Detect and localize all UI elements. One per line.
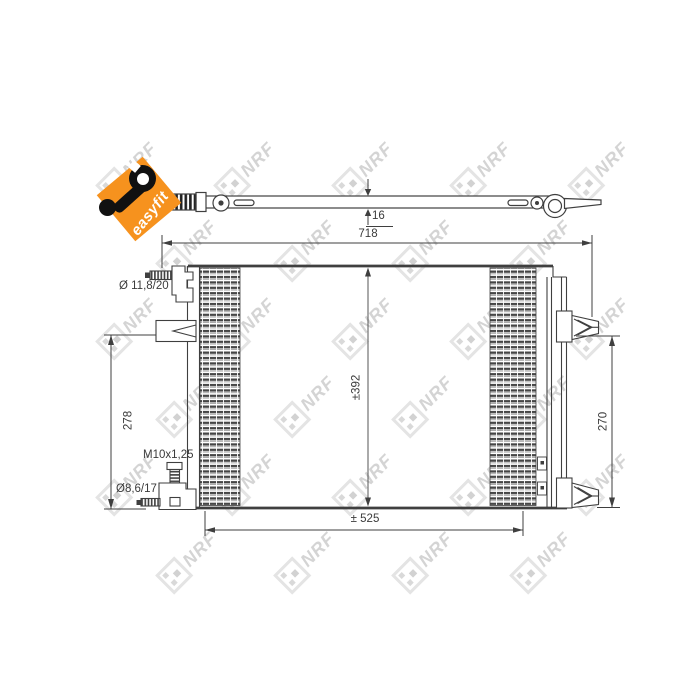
dim-label-core-height: ±392 xyxy=(351,360,364,416)
front-view xyxy=(186,266,567,508)
technical-drawing-page: NRFNRFNRFNRFNRFNRFNRFNRFNRFNRFNRFNRFNRFN… xyxy=(0,0,700,700)
centerline-392 xyxy=(365,268,371,507)
dim-label-right-mount-height: 270 xyxy=(598,394,611,450)
condenser-diagram xyxy=(0,0,700,700)
dim-label-bottom-width: ± 525 xyxy=(336,513,394,525)
right-fin-core xyxy=(490,268,536,506)
port-label-top: Ø 11,8/20 xyxy=(119,280,169,292)
easyfit-badge: easyfit xyxy=(92,152,186,246)
wrench-ball-end xyxy=(99,199,116,216)
dim-label-left-mount-height: 278 xyxy=(123,393,136,449)
port-label-bottom: Ø8,6/17 xyxy=(116,483,157,495)
wrench-open-end xyxy=(129,165,156,192)
dim-label-thickness: 16 xyxy=(372,210,385,222)
thread-spec-label: M10x1,25 xyxy=(143,449,194,461)
dim-label-overall-width: 718 xyxy=(340,228,396,240)
left-fin-core xyxy=(200,268,240,506)
right-mount-brackets xyxy=(557,311,599,508)
